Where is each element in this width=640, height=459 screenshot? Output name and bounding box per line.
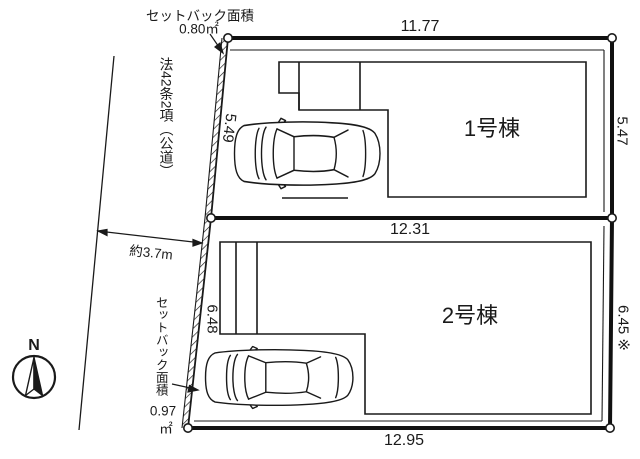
lot2-top-dimension: 12.31 [390,222,430,238]
lot1-right-dimension: 5.47 [615,116,630,145]
lot1-building-label: 1号棟 [464,118,520,140]
lot1-left-dimension: 5.49 [220,113,238,144]
setback-area-bottom-unit: ㎡ [159,422,173,436]
lot2-left-dimension: 6.48 [205,304,220,333]
road-edge-line [79,56,114,430]
lot2-bottom-dimension: 12.95 [384,433,424,449]
car-icon-lot1 [235,118,381,188]
setback-area-bottom-label: セットバック面積 [153,296,167,396]
compass-icon [13,356,55,398]
car-icon-lot2 [206,347,353,409]
compass-north-label: N [28,338,40,354]
site-plan: セットバック面積 0.80㎡ 法42条2項（公道） 約3.7m 11.77 5.… [0,0,640,459]
road-designation-label: 法42条2項（公道） [158,57,173,178]
setback-bottom-leader [172,384,198,392]
setback-area-top-value: 0.80㎡ [179,22,219,36]
lot1-top-dimension: 11.77 [401,19,440,35]
lot2-building-label: 2号棟 [442,305,498,327]
road-width-arrow [98,230,202,247]
site-plan-drawing [0,0,640,459]
lot2-right-dimension: 6.45 ※ [616,305,631,351]
setback-area-bottom-value: 0.97 [150,404,176,418]
